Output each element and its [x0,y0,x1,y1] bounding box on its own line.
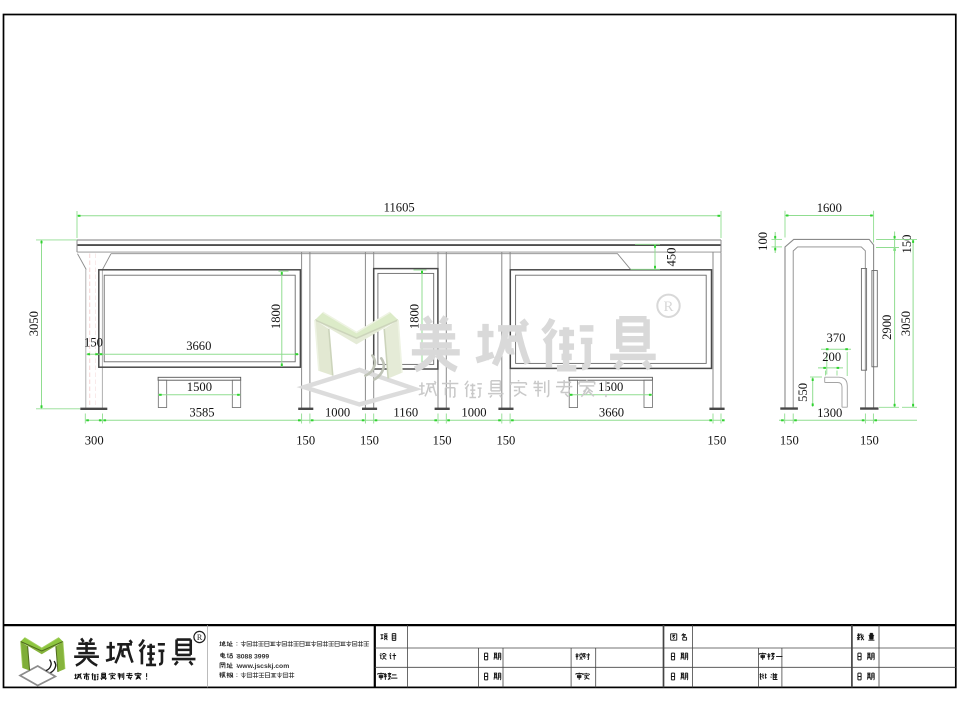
svg-text:11605: 11605 [384,201,415,215]
svg-text:450: 450 [664,248,678,267]
svg-text:3585: 3585 [189,406,214,420]
svg-text:150: 150 [84,336,103,350]
svg-text:150: 150 [433,434,452,448]
svg-text:150: 150 [360,434,379,448]
svg-text:150: 150 [496,434,515,448]
svg-text:8088 3999: 8088 3999 [237,653,269,660]
svg-text:1000: 1000 [325,406,350,420]
svg-text:www.jscskj.com: www.jscskj.com [236,663,289,670]
svg-text:3050: 3050 [899,311,913,336]
svg-text:1300: 1300 [817,406,842,420]
svg-text:370: 370 [827,331,846,345]
svg-text:3660: 3660 [599,406,624,420]
svg-text:R: R [197,633,203,642]
svg-text:1160: 1160 [393,406,418,420]
svg-text:150: 150 [707,434,726,448]
svg-text:200: 200 [822,350,841,364]
svg-text:100: 100 [756,232,770,251]
svg-text:150: 150 [860,434,879,448]
svg-text:1500: 1500 [598,380,623,394]
svg-text:R: R [663,299,673,315]
svg-text:150: 150 [780,434,799,448]
svg-text:1600: 1600 [817,201,842,215]
svg-text:1800: 1800 [407,304,421,329]
svg-text:3050: 3050 [27,311,41,336]
svg-text:300: 300 [85,434,104,448]
svg-text:150: 150 [900,235,914,254]
svg-text:3660: 3660 [186,339,211,353]
svg-text:1000: 1000 [461,406,486,420]
svg-text:1500: 1500 [187,380,212,394]
svg-text:150: 150 [296,434,315,448]
svg-text:550: 550 [796,383,810,402]
svg-text:2900: 2900 [880,315,894,340]
svg-text:1800: 1800 [269,304,283,329]
